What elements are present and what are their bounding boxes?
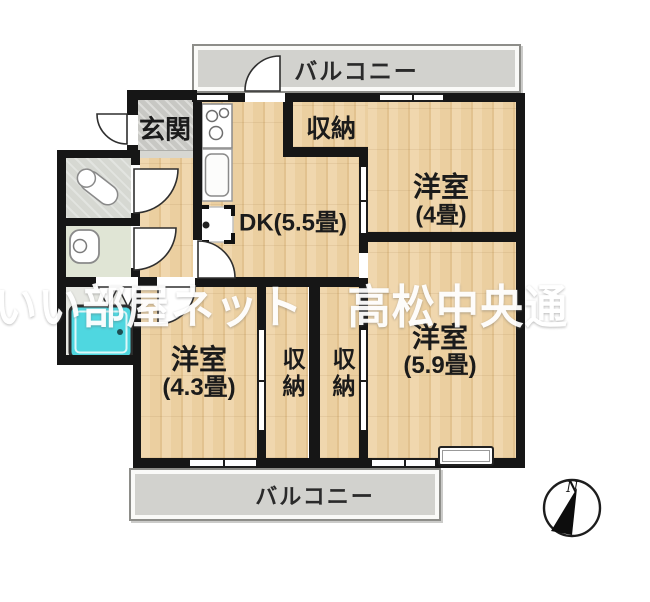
label-closet-top: 収納 [306, 109, 356, 145]
label-closet-right: 収納 [325, 347, 359, 401]
room-ne-size: (4畳) [413, 203, 469, 228]
balcony-door-arc [245, 56, 280, 91]
label-room-ne: 洋室 (4畳) [413, 172, 469, 227]
label-room-sw: 洋室 (4.3畳) [162, 345, 235, 401]
entry-door-arc [97, 114, 127, 144]
room-sw-name: 洋室 [162, 345, 235, 375]
label-dk: DK(5.5畳) [239, 203, 347, 238]
toilet-door-arc [134, 228, 176, 270]
compass-north-label: N [566, 477, 578, 497]
floorplan-canvas: バルコニー バルコニー [0, 0, 650, 602]
room-ne-name: 洋室 [413, 172, 469, 202]
label-genkan: 玄関 [139, 110, 191, 147]
room-sw-size: (4.3畳) [162, 375, 235, 401]
label-closet-left: 収納 [275, 347, 309, 401]
room-se-size: (5.9畳) [403, 353, 476, 379]
watermark-text: いい部屋ネット 高松中央通 [0, 271, 568, 337]
washroom-door-arc [134, 169, 178, 213]
